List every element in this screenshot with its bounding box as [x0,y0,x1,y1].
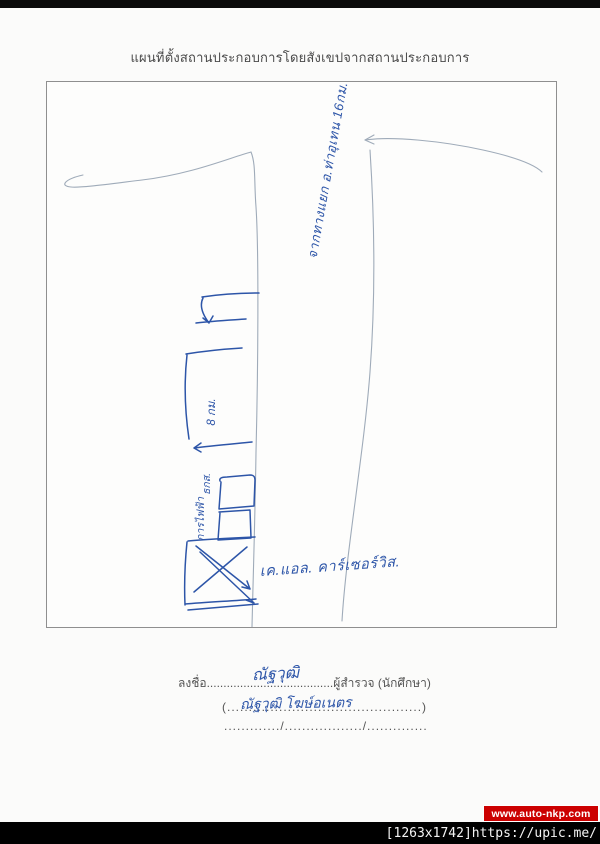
hand-drawn-map: จากทางแยก อ.ท่าอุเทน 16กม. 8 กม. ธกส. กา… [47,82,556,627]
building-sketch-top [196,293,259,323]
sign-prefix-label: ลงชื่อ [178,676,207,690]
handwritten-full-name: ณัฐวุฒิ โฆษ์อเนตร [240,692,352,716]
road-distance-label: จากทางแยก อ.ท่าอุเทน 16กม. [305,82,352,260]
poi-boxes-sketch [218,475,255,540]
destination-x-box [185,537,258,610]
main-road-right-line [365,139,542,172]
main-road-left-line [65,152,258,627]
signature-line: ลงชื่อ..................................… [178,674,431,693]
page-title: แผนที่ตั้งสถานประกอบการโดยสังเขปจากสถานป… [0,47,600,68]
date-line: ............./................../.......… [224,719,428,733]
side-road-right-line [342,150,374,621]
poi-bank-label: ธกส. [201,473,213,495]
surveyor-role-label: ผู้สำรวจ (นักศึกษา) [333,676,431,690]
scan-top-edge [0,0,600,8]
poi-electric-label: การไฟฟ้า [194,496,207,541]
map-sketch-frame: จากทางแยก อ.ท่าอุเทน 16กม. 8 กม. ธกส. กา… [46,81,557,628]
block-sketch-middle [185,348,252,452]
segment-distance-label: 8 กม. [206,398,218,425]
scanned-document-page: แผนที่ตั้งสถานประกอบการโดยสังเขปจากสถานป… [0,0,600,844]
image-host-info-bar: [1263x1742]https://upic.me/ [0,822,600,844]
handwritten-signature: ณัฐวุฒิ [251,661,299,688]
site-watermark-banner: www.auto-nkp.com [483,805,599,822]
destination-name-label: เค.แอล. คาร์เซอร์วิส. [259,553,400,580]
